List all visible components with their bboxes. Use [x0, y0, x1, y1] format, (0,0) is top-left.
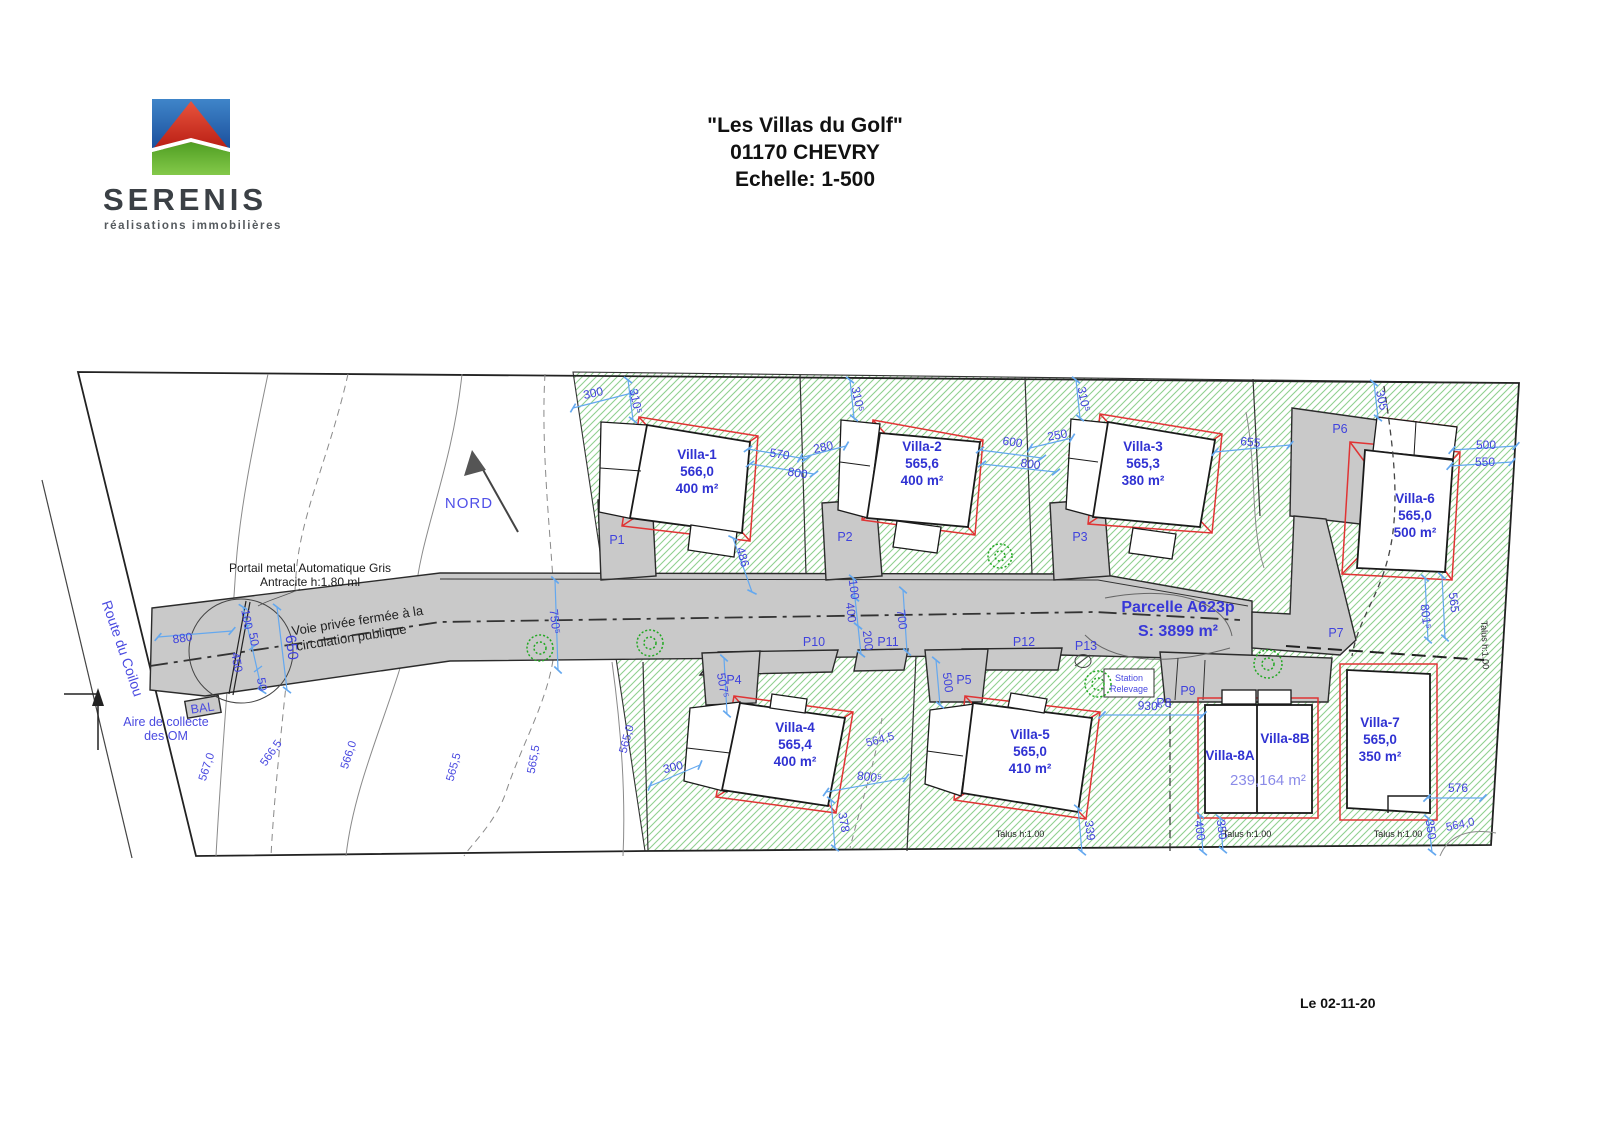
villa-6-area: 500 m²	[1394, 525, 1437, 540]
villa-3-area: 380 m²	[1122, 473, 1165, 488]
villa-5-area: 410 m²	[1009, 761, 1052, 776]
dim-label: 576	[1448, 781, 1468, 795]
parking-label: P1	[609, 533, 624, 547]
talus-label: Talus h:1.00	[1479, 620, 1491, 669]
talus-label: Talus h:1.00	[1374, 829, 1423, 839]
dim-label: 880	[172, 630, 194, 647]
station-label-line2: Relevage	[1110, 684, 1148, 694]
dim-label: 400	[1192, 820, 1208, 842]
north-arrow	[464, 450, 518, 532]
parking-label: P11	[877, 635, 898, 649]
dim-label: 339	[1082, 820, 1098, 842]
villa-3-name: Villa-3	[1123, 439, 1163, 454]
contour-label: 567,0	[197, 752, 217, 783]
parking-label: P8	[1156, 696, 1171, 710]
dim-label: 600	[1002, 434, 1024, 451]
site-plan-drawing: 300 310⁵ 570 800 280 310⁵ 600 800 250 31…	[0, 0, 1600, 1132]
contour-label: 566,0	[339, 740, 359, 771]
station-label-line1: Station	[1115, 673, 1143, 683]
villa-1-level: 566,0	[680, 464, 714, 479]
waste-collection-line1: Aire de collecte	[123, 715, 209, 729]
dim-label: 200	[860, 630, 876, 652]
contour-label: 565,5	[526, 744, 543, 774]
route-name: Route du Coilou	[99, 598, 147, 698]
entry-arrow	[64, 688, 104, 750]
parking-label: P3	[1072, 530, 1087, 544]
villa-2-name: Villa-2	[902, 439, 942, 454]
talus-label: Talus h:1.00	[996, 829, 1045, 839]
villa-1-area: 400 m²	[676, 481, 719, 496]
dim-label: 50	[246, 632, 262, 648]
dim-label: 550	[1475, 455, 1495, 469]
villa-4-area: 400 m²	[774, 754, 817, 769]
dim-label: 565	[1446, 592, 1462, 614]
dim-label: 500	[940, 672, 956, 694]
parking-label: P9	[1180, 684, 1195, 698]
waste-collection-line2: des OM	[144, 729, 188, 743]
parking-label: P2	[837, 530, 852, 544]
villa-3-level: 565,3	[1126, 456, 1160, 471]
parking-label: P5	[956, 673, 971, 687]
parcel-name: Parcelle A623p	[1121, 599, 1234, 616]
contour-label: 565,5	[445, 752, 464, 783]
dim-label: 800	[1020, 456, 1042, 473]
villa-5-level: 565,0	[1013, 744, 1047, 759]
parking-p11	[854, 649, 908, 671]
gate-note-line2: Antracite h:1.80 ml	[260, 575, 360, 589]
parking-label: P10	[803, 635, 825, 649]
villa-6-name: Villa-6	[1395, 491, 1435, 506]
dim-label: 500	[1476, 438, 1496, 452]
villa-4-name: Villa-4	[775, 720, 815, 735]
gate-note-line1: Portail metal Automatique Gris	[229, 561, 391, 575]
parking-label: P6	[1332, 422, 1347, 436]
villa-7-area: 350 m²	[1359, 749, 1402, 764]
villa-7-level: 565,0	[1363, 732, 1397, 747]
dim-label: 350	[1423, 819, 1439, 841]
parking-label: P13	[1075, 639, 1097, 653]
villa-8a-name: Villa-8A	[1205, 748, 1255, 763]
site-plan-page: SERENIS réalisations immobilières "Les V…	[0, 0, 1600, 1132]
drawing-date: Le 02-11-20	[1300, 995, 1460, 1011]
villa-7-name: Villa-7	[1360, 715, 1400, 730]
dim-label: 50	[254, 677, 270, 693]
dim-label: 700	[894, 609, 910, 631]
villa-4-level: 565,4	[778, 737, 812, 752]
parcel-area: S: 3899 m²	[1138, 623, 1218, 640]
talus-label: Talus h:1.00	[1223, 829, 1272, 839]
parking-label: P7	[1328, 626, 1343, 640]
north-label: NORD	[445, 495, 493, 512]
villa-8b-name: Villa-8B	[1260, 731, 1310, 746]
dim-label: 655	[1240, 434, 1262, 450]
villa-2-level: 565,6	[905, 456, 939, 471]
dim-label: 400	[843, 602, 859, 624]
villa-1-name: Villa-1	[677, 447, 717, 462]
parking-label: P4	[726, 673, 741, 687]
villa-8-area: 239,164 m²	[1230, 772, 1306, 789]
villa-6-level: 565,0	[1398, 508, 1432, 523]
villa-5-name: Villa-5	[1010, 727, 1050, 742]
villa-2-area: 400 m²	[901, 473, 944, 488]
contour-label: 566,5	[258, 738, 284, 768]
dim-label: 100	[846, 579, 862, 601]
parking-label: P12	[1013, 635, 1035, 649]
